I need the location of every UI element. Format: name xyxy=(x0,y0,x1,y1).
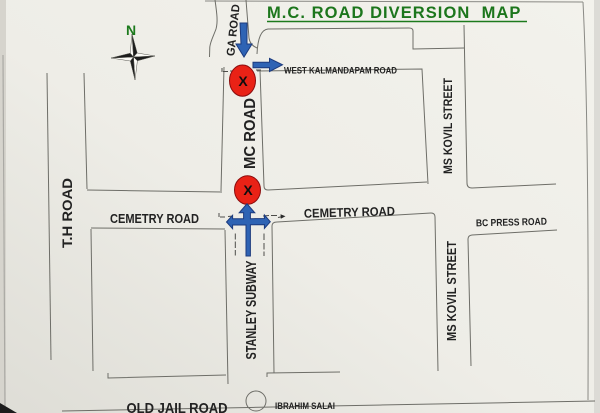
svg-text:M.C. ROAD DIVERSION MAP: M.C. ROAD DIVERSION MAP xyxy=(267,4,521,22)
svg-text:WEST KALMANDAPAM ROAD: WEST KALMANDAPAM ROAD xyxy=(284,66,397,76)
svg-text:BC PRESS ROAD: BC PRESS ROAD xyxy=(476,217,547,230)
svg-text:MS KOVIL STREET: MS KOVIL STREET xyxy=(443,78,455,174)
svg-text:N: N xyxy=(126,22,136,38)
svg-text:MS KOVIL STREET: MS KOVIL STREET xyxy=(444,241,459,341)
svg-text:MC ROAD: MC ROAD xyxy=(242,98,259,169)
svg-text:X: X xyxy=(238,73,248,89)
svg-text:STANLEY SUBWAY: STANLEY SUBWAY xyxy=(243,261,260,360)
svg-text:X: X xyxy=(243,182,253,198)
svg-text:CEMETRY ROAD: CEMETRY ROAD xyxy=(110,212,199,226)
svg-text:IBRAHIM SALAI: IBRAHIM SALAI xyxy=(275,401,335,412)
svg-text:CEMETRY ROAD: CEMETRY ROAD xyxy=(304,204,395,220)
svg-text:T.H ROAD: T.H ROAD xyxy=(59,178,75,248)
svg-text:OLD JAIL ROAD: OLD JAIL ROAD xyxy=(127,400,228,413)
